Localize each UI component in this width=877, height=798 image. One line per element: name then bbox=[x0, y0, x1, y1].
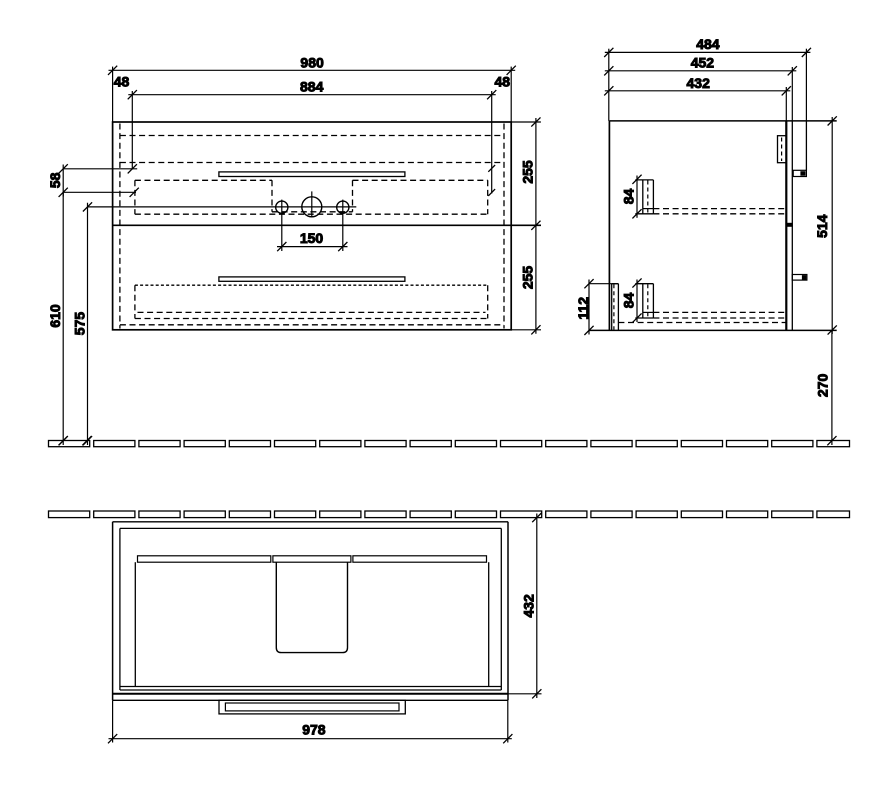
svg-text:84: 84 bbox=[621, 293, 637, 309]
svg-text:978: 978 bbox=[302, 722, 326, 738]
svg-text:58: 58 bbox=[47, 172, 63, 188]
svg-text:432: 432 bbox=[521, 594, 537, 618]
svg-text:575: 575 bbox=[72, 312, 88, 336]
svg-text:255: 255 bbox=[520, 266, 536, 290]
svg-text:150: 150 bbox=[300, 230, 324, 246]
svg-text:432: 432 bbox=[687, 75, 711, 91]
svg-text:112: 112 bbox=[575, 297, 591, 320]
svg-text:48: 48 bbox=[114, 74, 130, 90]
svg-text:48: 48 bbox=[495, 74, 511, 90]
svg-text:270: 270 bbox=[815, 374, 831, 398]
svg-text:980: 980 bbox=[300, 55, 324, 71]
svg-text:484: 484 bbox=[696, 36, 720, 52]
svg-text:452: 452 bbox=[691, 55, 715, 71]
svg-text:610: 610 bbox=[47, 304, 63, 328]
svg-text:84: 84 bbox=[621, 189, 637, 205]
svg-text:514: 514 bbox=[814, 214, 830, 238]
svg-text:884: 884 bbox=[300, 79, 324, 95]
svg-text:255: 255 bbox=[520, 160, 536, 184]
